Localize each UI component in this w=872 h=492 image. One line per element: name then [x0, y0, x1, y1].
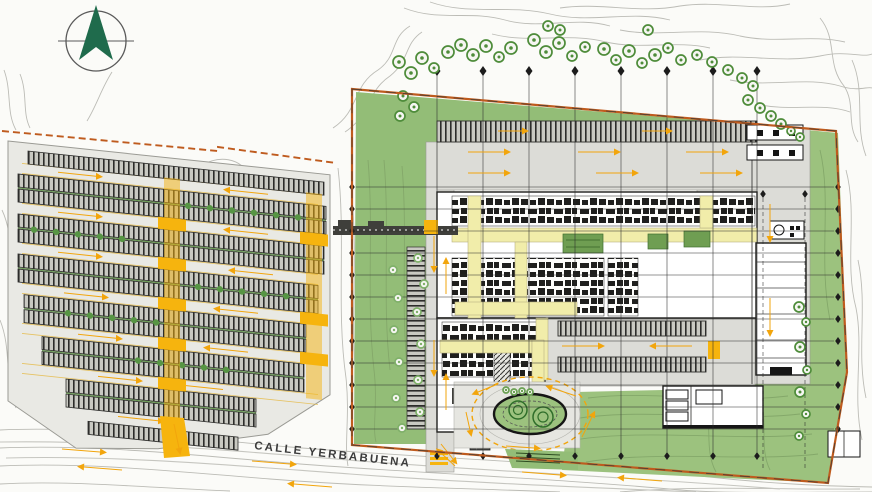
tree-center: [641, 62, 644, 65]
tree: [398, 424, 406, 432]
tree-center: [798, 435, 800, 437]
corridor: [532, 340, 544, 382]
tree: [414, 376, 422, 384]
tree: [511, 389, 517, 395]
contour-line: [700, 54, 872, 60]
west-parking-column: [407, 247, 425, 429]
tree-center: [509, 46, 513, 50]
tree-center: [532, 38, 536, 42]
contour-line: [820, 18, 858, 142]
corridor: [452, 228, 757, 242]
tree-center: [397, 60, 401, 64]
contour-line: [4, 70, 16, 130]
tree: [611, 55, 621, 65]
tree: [543, 21, 553, 31]
tree: [409, 102, 419, 112]
grid-diamond: [754, 66, 761, 76]
tree: [748, 81, 758, 91]
corridor: [700, 196, 713, 228]
tree: [766, 111, 776, 121]
tree-center: [419, 411, 421, 413]
bridge-block: [338, 220, 352, 227]
tree: [802, 410, 810, 418]
tree: [803, 366, 811, 374]
contour-line: [620, 30, 845, 42]
tree-center: [805, 321, 807, 323]
tree-center: [647, 29, 650, 32]
contour-line: [338, 168, 348, 466]
canopy-parking-row: [437, 121, 757, 142]
tree: [598, 43, 610, 55]
cross-aisle: [306, 192, 322, 400]
tree: [393, 56, 405, 68]
bridge-landing: [424, 220, 438, 234]
equipment-detail: [773, 150, 779, 156]
corridor: [440, 340, 532, 353]
courtyard: [563, 234, 603, 253]
equipment-detail: [790, 233, 794, 237]
tree: [413, 308, 421, 316]
tree-center: [401, 427, 403, 429]
tree-center: [799, 136, 801, 138]
tree-center: [798, 306, 801, 309]
tree-center: [667, 47, 670, 50]
crosswalk-stripe: [430, 462, 448, 465]
grid-diamond: [664, 66, 671, 76]
tree-center: [615, 59, 618, 62]
tree-center: [544, 50, 548, 54]
tree-center: [420, 56, 424, 60]
contour-line: [404, 8, 610, 26]
annex-room: [666, 390, 688, 399]
tree: [467, 49, 479, 61]
corridor: [455, 302, 577, 315]
tree-center: [498, 56, 501, 59]
tree: [389, 266, 397, 274]
flow-arrow-shaft: [62, 449, 100, 452]
tree: [707, 57, 717, 67]
annex-room: [696, 390, 722, 404]
flow-arrow-head: [617, 475, 624, 482]
annex-room: [666, 412, 688, 421]
grid-diamond: [526, 66, 533, 76]
tree-center: [395, 397, 397, 399]
tree: [416, 52, 428, 64]
tree-center: [402, 95, 405, 98]
tree-center: [446, 50, 450, 54]
tree-center: [484, 44, 488, 48]
tree-center: [397, 297, 399, 299]
site-plan-canvas: CALLE YERBABUENA: [0, 0, 872, 492]
apron-stall-row: [558, 357, 706, 372]
courtyard: [648, 234, 668, 249]
bridge-block: [368, 221, 384, 229]
tree: [390, 326, 398, 334]
tree-center: [521, 390, 523, 392]
flow-arrow-head: [100, 449, 107, 456]
tree: [796, 133, 804, 141]
flow-arrow-head: [77, 464, 84, 471]
tree-center: [584, 46, 587, 49]
tree-center: [417, 257, 419, 259]
contour-line: [87, 72, 112, 121]
equipment-detail: [796, 226, 800, 230]
tree-center: [399, 115, 402, 118]
oval-garden: [494, 394, 566, 434]
tree-center: [696, 54, 699, 57]
tree-center: [416, 311, 418, 313]
tree-center: [459, 43, 463, 47]
tree: [723, 65, 733, 75]
tree: [442, 46, 454, 58]
tree-center: [393, 329, 395, 331]
tree-center: [571, 55, 574, 58]
tree: [794, 302, 804, 312]
tree: [676, 55, 686, 65]
courtyard: [684, 231, 710, 247]
tree-center: [423, 283, 425, 285]
tree: [405, 67, 417, 79]
tree: [392, 394, 400, 402]
tree: [663, 43, 673, 53]
tree: [737, 73, 747, 83]
grid-diamond: [572, 66, 579, 76]
tree: [505, 42, 517, 54]
tree: [795, 387, 805, 397]
tree-center: [805, 413, 807, 415]
tree: [395, 358, 403, 366]
tree-center: [627, 49, 631, 53]
tree: [802, 318, 810, 326]
north-arrow: [58, 5, 134, 71]
tree-center: [770, 115, 773, 118]
tree: [429, 63, 439, 73]
tree-center: [433, 67, 436, 70]
equipment-detail: [757, 130, 763, 136]
flow-arrow-shaft: [294, 484, 332, 487]
tree: [540, 46, 552, 58]
room-block-east: [608, 258, 638, 316]
grid-diamond: [618, 66, 625, 76]
tree: [494, 52, 504, 62]
tree: [643, 25, 653, 35]
tree: [755, 103, 765, 113]
tree: [480, 40, 492, 52]
tree-center: [398, 361, 400, 363]
tree: [623, 45, 635, 57]
tree: [637, 58, 647, 68]
tree-center: [752, 85, 755, 88]
tree-center: [711, 61, 714, 64]
loading-door: [770, 367, 792, 375]
tree-center: [727, 69, 730, 72]
contour-line: [430, 2, 670, 20]
tree: [527, 389, 533, 395]
tree: [395, 111, 405, 121]
tree: [528, 34, 540, 46]
street-label: CALLE YERBABUENA: [254, 440, 412, 470]
tree: [567, 51, 577, 61]
tree: [743, 95, 753, 105]
grid-diamond: [480, 66, 487, 76]
flow-arrow-head: [287, 481, 294, 488]
tree-center: [505, 389, 507, 391]
tree: [414, 254, 422, 262]
annex-room: [666, 401, 688, 410]
tree-center: [806, 369, 808, 371]
tree: [455, 39, 467, 51]
tree: [795, 342, 805, 352]
equipment-detail: [790, 226, 794, 230]
tree: [416, 408, 424, 416]
tree-center: [747, 99, 750, 102]
tree: [420, 280, 428, 288]
tree-center: [790, 130, 792, 132]
tree-center: [513, 391, 515, 393]
contour-line: [858, 260, 866, 398]
tree-center: [557, 41, 561, 45]
tree: [649, 49, 661, 61]
contour-line: [852, 60, 866, 156]
tree-center: [409, 71, 413, 75]
corridor: [468, 196, 481, 318]
equipment-detail: [757, 150, 763, 156]
equipment-detail: [773, 130, 779, 136]
loading-bay: [708, 341, 720, 359]
tree-center: [559, 29, 562, 32]
tree-center: [799, 346, 802, 349]
tree: [503, 387, 509, 393]
tree: [417, 340, 425, 348]
tree-center: [602, 47, 606, 51]
contour-line: [846, 170, 862, 440]
contour-line: [20, 74, 30, 128]
contour-line: [0, 483, 230, 491]
tree-center: [417, 379, 419, 381]
tree: [553, 37, 565, 49]
tree: [394, 294, 402, 302]
tree-center: [392, 269, 394, 271]
tree-center: [529, 391, 531, 393]
equipment-detail: [789, 150, 795, 156]
apron-stall-row: [558, 321, 706, 336]
tree-center: [420, 343, 422, 345]
site-plan-drawing: CALLE YERBABUENA: [0, 0, 872, 492]
tree-center: [413, 106, 416, 109]
tree-center: [799, 391, 802, 394]
tree: [519, 388, 525, 394]
tree: [795, 432, 803, 440]
tree-center: [653, 53, 657, 57]
tree: [692, 50, 702, 60]
tree-center: [680, 59, 683, 62]
flow-arrow-shaft: [624, 478, 662, 481]
contour-line: [560, 4, 790, 9]
tree: [555, 25, 565, 35]
tree-center: [759, 107, 762, 110]
main-drive-aisle: [437, 142, 757, 190]
tree-center: [741, 77, 744, 80]
tree-center: [471, 53, 475, 57]
flow-arrow-head: [560, 472, 567, 479]
tree-center: [547, 25, 550, 28]
flow-arrow-head: [290, 461, 297, 468]
tree: [580, 42, 590, 52]
